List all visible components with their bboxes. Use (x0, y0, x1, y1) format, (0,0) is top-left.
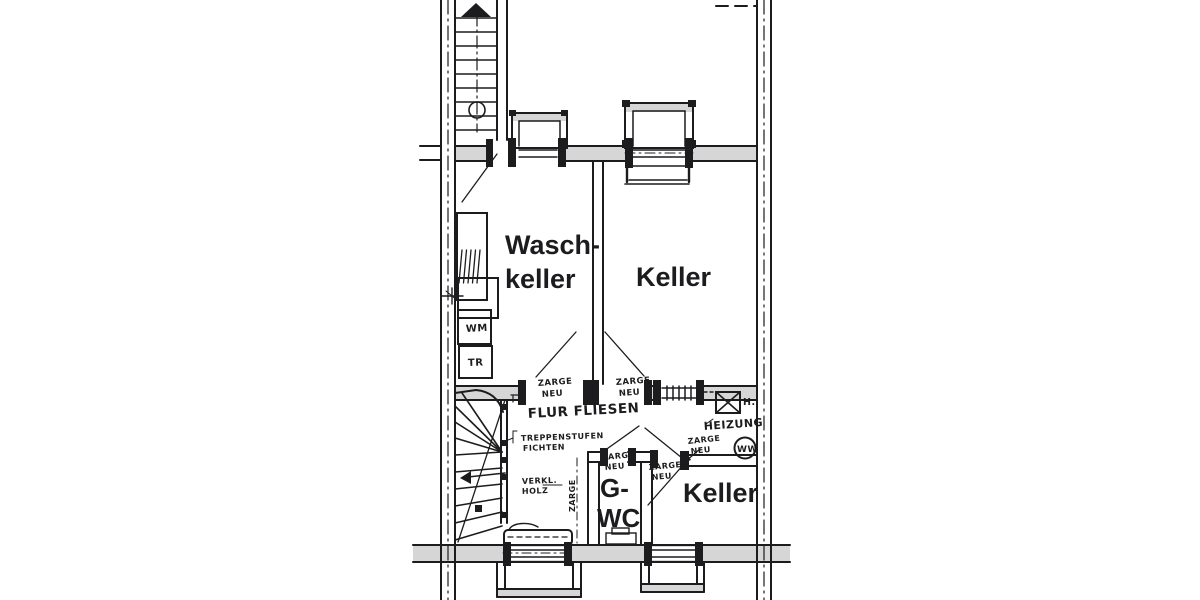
winder-treads (455, 393, 502, 540)
annotation-treppenstufen-line1: TREPPENSTUFEN (521, 431, 604, 443)
annotation-waschmaschine-mark: WM (466, 323, 489, 335)
keller-lower-wall (688, 455, 757, 466)
labels: Wasch- keller Keller G- WC Keller FLUR F… (466, 230, 764, 533)
faucet-icon (441, 288, 463, 304)
annotation-zarge-neu-5-line2: NEU (651, 471, 672, 482)
annotation-heizung: HEIZUNG (703, 416, 763, 433)
annotation-zarge-vertical: ZARGE (568, 479, 577, 512)
annotation-zarge-neu-1-line2: NEU (542, 389, 564, 400)
room-label-gwc-line2: WC (597, 503, 641, 533)
annotation-zarge-neu-5-line1: ZARGE (648, 460, 681, 472)
annotation-treppenstufen-line2: FICHTEN (523, 443, 565, 453)
louvre-door (662, 386, 696, 400)
annotation-trockner-mark: TR (468, 357, 484, 369)
annotation-verkleidung-line1: VERKL. (522, 476, 557, 486)
floor-plan-page: Wasch- keller Keller G- WC Keller FLUR F… (0, 0, 1200, 600)
annotation-zarge-neu-2-line2: NEU (619, 388, 641, 399)
stair-down-arrow-icon (460, 471, 471, 484)
room-label-waschkeller-line2: keller (505, 264, 576, 294)
window-top-middle (622, 100, 696, 184)
room-label-keller-lower: Keller (683, 478, 759, 508)
door-posts (486, 138, 704, 566)
stair-up-arrow-icon (461, 3, 491, 17)
party-wall-left (420, 0, 455, 600)
annotation-boiler-mark: H. (743, 397, 756, 408)
middle-wall (593, 162, 603, 384)
annotation-flur-fliesen: FLUR FLIESEN (527, 400, 639, 422)
annotation-zarge-neu-3-line1: ZARGE (687, 434, 720, 446)
annotation-zarge-neu-4-line2: NEU (604, 461, 625, 472)
upper-staircase (456, 0, 507, 140)
window-recess-inner (625, 164, 689, 184)
wall-openings (493, 143, 698, 560)
floor-plan-canvas: Wasch- keller Keller G- WC Keller FLUR F… (0, 0, 1200, 600)
radiator (504, 523, 572, 545)
annotation-warmwasser-mark: WW (737, 445, 758, 455)
room-label-keller-upper: Keller (636, 262, 712, 292)
annotation-verkleidung-line2: HOLZ (522, 486, 549, 496)
room-label-waschkeller-line1: Wasch- (505, 230, 600, 260)
party-wall-right (716, 0, 771, 600)
laundry-fixtures (441, 213, 498, 378)
room-label-gwc-line1: G- (600, 473, 629, 503)
